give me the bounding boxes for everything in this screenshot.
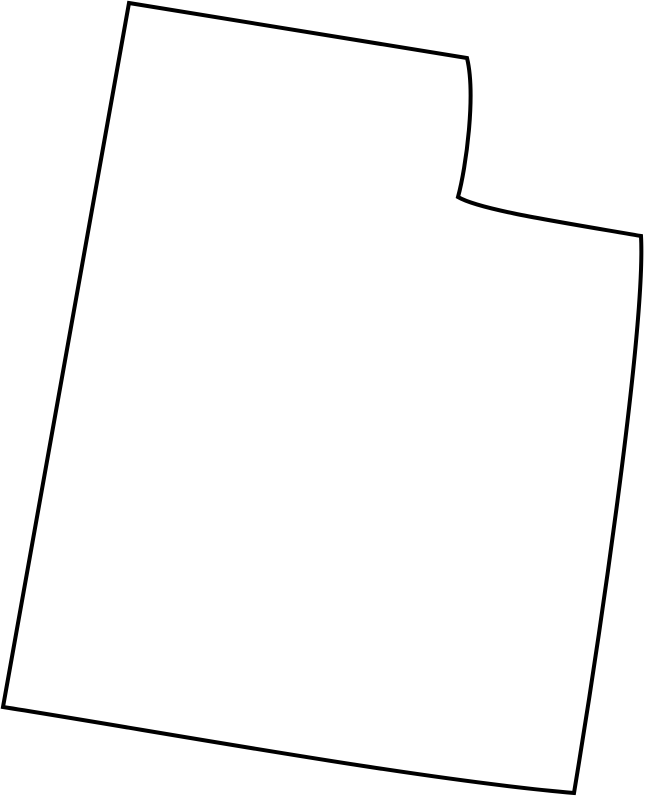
map-canvas: [0, 0, 649, 800]
utah-state-border-shape: [3, 3, 641, 793]
utah-outline-map: [0, 0, 649, 800]
